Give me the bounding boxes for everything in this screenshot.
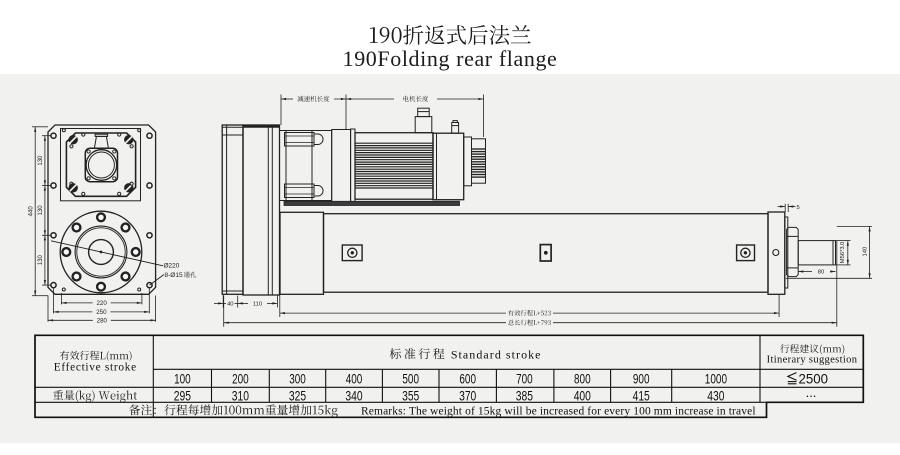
- svg-text:Remarks: The weight of 15kg wi: Remarks: The weight of 15kg will be incr…: [361, 405, 756, 417]
- svg-text:190Folding rear flange: 190Folding rear flange: [343, 46, 558, 71]
- svg-text:...: ...: [806, 385, 817, 400]
- svg-text:130: 130: [38, 255, 44, 266]
- svg-text:600: 600: [459, 370, 476, 386]
- svg-text:220: 220: [96, 300, 107, 307]
- svg-text:80: 80: [818, 270, 824, 276]
- svg-text:325: 325: [289, 388, 306, 404]
- svg-text:M56*3.0: M56*3.0: [840, 242, 846, 264]
- svg-text:500: 500: [402, 370, 419, 386]
- svg-text:310: 310: [232, 388, 249, 404]
- svg-text:40: 40: [227, 302, 233, 308]
- svg-text:415: 415: [633, 388, 650, 404]
- svg-text:400: 400: [574, 388, 591, 404]
- svg-text:400: 400: [346, 370, 363, 386]
- svg-text:5: 5: [797, 205, 800, 211]
- svg-text:800: 800: [574, 370, 591, 386]
- svg-text:200: 200: [232, 370, 249, 386]
- svg-text:100: 100: [174, 370, 191, 386]
- svg-text:2500: 2500: [799, 370, 829, 386]
- svg-text:8-Ø15: 8-Ø15: [165, 272, 183, 279]
- svg-text:Itinerary suggestion: Itinerary suggestion: [767, 354, 858, 365]
- svg-text:280: 280: [97, 318, 108, 325]
- svg-text:340: 340: [345, 388, 362, 404]
- svg-text:440: 440: [29, 206, 35, 217]
- svg-text:900: 900: [633, 370, 650, 386]
- svg-text:Standard stroke: Standard stroke: [451, 348, 542, 362]
- svg-text:430: 430: [707, 388, 724, 404]
- svg-text:110: 110: [253, 302, 262, 308]
- svg-text:Ø220: Ø220: [164, 263, 180, 270]
- svg-text:385: 385: [516, 388, 533, 404]
- svg-text:1000: 1000: [705, 370, 727, 386]
- svg-text:130: 130: [38, 155, 44, 166]
- svg-text:370: 370: [459, 388, 476, 404]
- svg-text:250: 250: [96, 309, 107, 316]
- svg-text:130: 130: [38, 205, 44, 216]
- svg-text:355: 355: [402, 388, 419, 404]
- svg-text:700: 700: [516, 370, 533, 386]
- svg-text:295: 295: [174, 388, 191, 404]
- svg-text:Effective stroke: Effective stroke: [54, 362, 137, 374]
- svg-text:300: 300: [289, 370, 306, 386]
- svg-text:140: 140: [863, 247, 869, 257]
